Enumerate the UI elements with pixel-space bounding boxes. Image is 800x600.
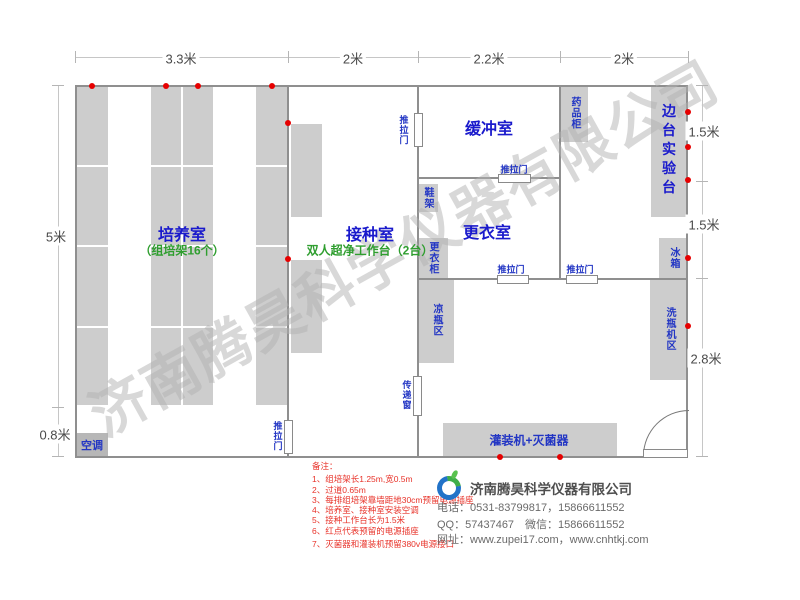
company-name: 济南腾昊科学仪器有限公司 — [470, 478, 632, 498]
company-logo-icon — [436, 470, 464, 500]
room-inoculation-sub: 双人超净工作台（2台） — [307, 242, 434, 259]
fridge-label: 冰箱 — [668, 247, 678, 269]
power-socket-dot — [685, 177, 691, 183]
room-cultivation-sub: （组培架16个） — [139, 242, 224, 259]
room-changing: 更衣室 — [463, 219, 511, 243]
power-socket-dot — [269, 83, 275, 89]
medicine-cabinet-label: 药品柜 — [569, 97, 579, 130]
transfer-window-label: 传递窗 — [402, 380, 411, 410]
sliding-door — [497, 275, 529, 284]
transfer-window — [413, 376, 422, 416]
bottle-cooling-label: 凉瓶区 — [431, 304, 441, 337]
dim-top-3: 2.2米 — [470, 49, 507, 68]
power-socket-dot — [195, 83, 201, 89]
power-socket-dot — [89, 83, 95, 89]
sliding-door-label: 推拉门 — [399, 115, 408, 145]
company-qq: QQ：57437467 微信：15866611552 — [437, 516, 625, 532]
dim-top-2: 2米 — [340, 49, 366, 68]
shoe-rack-label: 鞋架 — [422, 187, 432, 209]
power-socket-dot — [557, 454, 563, 460]
dim-right-1: 1.5米 — [685, 122, 722, 141]
power-socket-dot — [685, 323, 691, 329]
entry-door-leaf — [643, 449, 688, 458]
sliding-door-label: 推拉门 — [273, 421, 282, 451]
dim-right-3: 2.8米 — [687, 349, 724, 368]
company-phone: 电话：0531-83799817，15866611552 — [437, 499, 625, 515]
sliding-door — [566, 275, 598, 284]
wall-cultivation-inoculation — [287, 85, 289, 456]
wardrobe-label: 更衣柜 — [427, 242, 437, 275]
floor-plan: 济南腾昊科学仪器有限公司 3.3米 2米 2.2米 2米 5米 0.8米 — [0, 0, 800, 600]
power-socket-dot — [285, 256, 291, 262]
sliding-door-label: 推拉门 — [500, 163, 527, 176]
wall-changing-south — [418, 278, 688, 280]
wall-left — [75, 85, 77, 458]
clean-bench-1 — [291, 124, 322, 217]
dim-top-1: 3.3米 — [162, 49, 199, 68]
dim-right-2: 1.5米 — [685, 215, 722, 234]
filler-sterilizer-label: 灌装机+灭菌器 — [489, 432, 568, 449]
power-socket-dot — [685, 255, 691, 261]
dim-left-2: 0.8米 — [36, 425, 73, 444]
sliding-door-label: 推拉门 — [497, 263, 524, 276]
power-socket-dot — [685, 144, 691, 150]
sliding-door — [414, 113, 423, 147]
power-socket-dot — [285, 120, 291, 126]
sliding-door-label: 推拉门 — [566, 263, 593, 276]
company-website: 网址：www.zupei17.com，www.cnhtkj.com — [437, 531, 649, 547]
air-conditioner-label: 空调 — [81, 437, 103, 453]
dim-left-1: 5米 — [43, 227, 69, 246]
power-socket-dot — [497, 454, 503, 460]
sliding-door — [284, 420, 293, 454]
side-lab-bench-label: 边台实验台 — [662, 104, 676, 199]
dim-top-4: 2米 — [611, 49, 637, 68]
room-buffer: 缓冲室 — [465, 115, 513, 139]
power-socket-dot — [163, 83, 169, 89]
wall-right — [686, 85, 688, 458]
power-socket-dot — [685, 109, 691, 115]
bottle-washer-label: 洗瓶机区 — [664, 307, 674, 351]
